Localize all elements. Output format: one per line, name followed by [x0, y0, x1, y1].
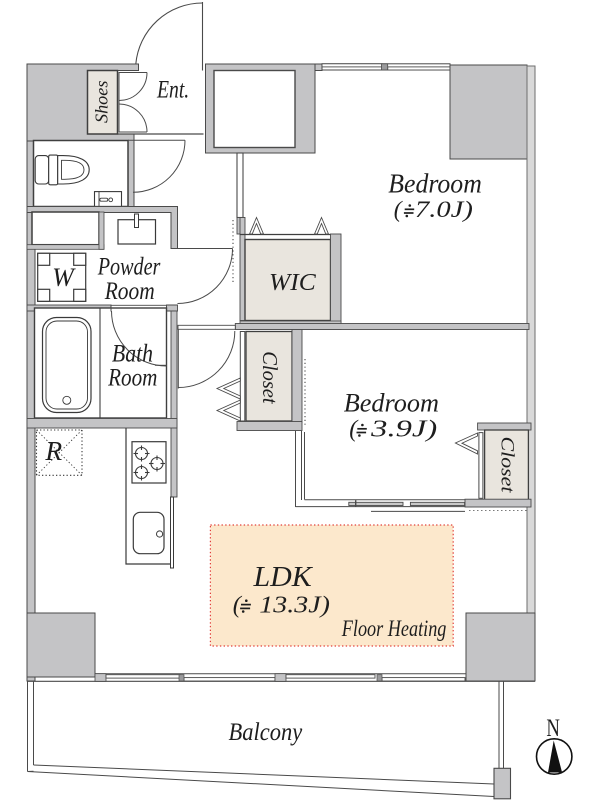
svg-text:3.9J): 3.9J)	[370, 417, 437, 443]
svg-text:W: W	[52, 263, 76, 292]
svg-text:LDK: LDK	[252, 562, 313, 593]
svg-text:Closet: Closet	[258, 351, 282, 404]
svg-text:Room: Room	[104, 278, 155, 305]
svg-text:N: N	[546, 713, 560, 742]
svg-text:Balcony: Balcony	[229, 719, 304, 746]
svg-text:Closet: Closet	[497, 437, 518, 494]
svg-text:Room: Room	[107, 363, 157, 392]
svg-text:Floor Heating: Floor Heating	[341, 616, 446, 641]
svg-text:Powder: Powder	[97, 254, 161, 281]
svg-text:Bedroom: Bedroom	[388, 167, 482, 198]
svg-text:Ent.: Ent.	[156, 74, 189, 103]
svg-text:Bedroom: Bedroom	[344, 388, 439, 417]
svg-text:7.0J): 7.0J)	[415, 197, 473, 223]
svg-text:Shoes: Shoes	[92, 80, 112, 123]
svg-text:R: R	[44, 435, 62, 466]
svg-text:WIC: WIC	[269, 270, 317, 296]
svg-text:13.3J): 13.3J)	[259, 592, 330, 619]
